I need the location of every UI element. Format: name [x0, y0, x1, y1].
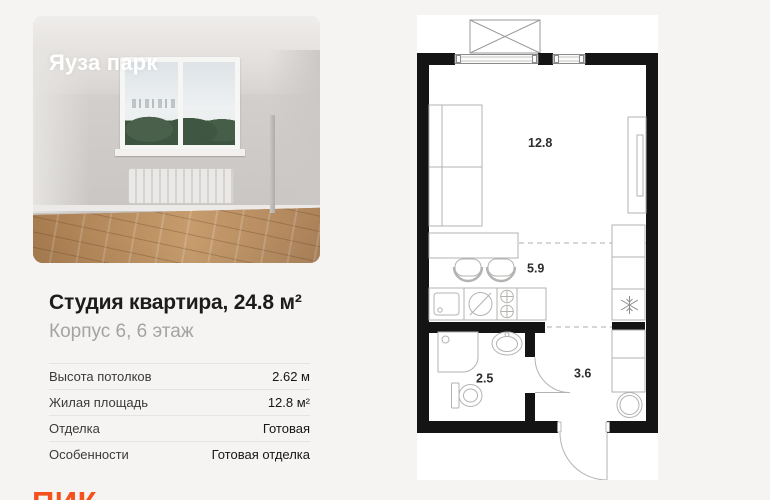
shower-icon: [438, 332, 478, 372]
room-area-kitchen: 5.9: [527, 262, 544, 276]
bed-icon: [429, 105, 482, 226]
detail-label: Особенности: [49, 447, 129, 462]
dining-counter-icon: [429, 233, 518, 258]
toilet-icon: [452, 383, 483, 408]
floorplan: 12.8 5.9 2.5 3.6: [417, 15, 658, 480]
detail-label: Жилая площадь: [49, 395, 148, 410]
apartment-photo: Яуза парк: [33, 16, 320, 263]
entry-door-arc: [560, 433, 607, 480]
detail-label: Высота потолков: [49, 369, 152, 384]
wardrobe-icon: [628, 117, 646, 213]
detail-value: 12.8 м²: [268, 395, 310, 410]
bathroom-sink-icon: [492, 332, 522, 355]
window-icon: [455, 55, 585, 64]
room-area-bathroom: 2.5: [476, 372, 493, 386]
kitchen-sink-icon: [429, 288, 464, 320]
room-area-living: 12.8: [528, 136, 552, 150]
detail-label: Отделка: [49, 421, 100, 436]
stove-icon: [497, 288, 517, 320]
listing-title: Студия квартира, 24.8 м²: [49, 291, 302, 315]
hall-cabinets-icon: [612, 330, 645, 392]
room-area-hallway: 3.6: [574, 367, 591, 381]
details-table: Высота потолков 2.62 м Жилая площадь 12.…: [49, 363, 310, 467]
kitchen-counter-icon: [517, 288, 546, 320]
detail-value: Готовая отделка: [212, 447, 310, 462]
pik-logo[interactable]: ПИК: [32, 485, 97, 500]
detail-row-features: Особенности Готовая отделка: [49, 441, 310, 467]
bathroom-door-arc: [535, 358, 570, 393]
water-heater-icon: [617, 393, 642, 418]
door-jamb-notches: [558, 422, 610, 432]
chair-icon: [454, 259, 482, 281]
detail-value: 2.62 м: [272, 369, 310, 384]
listing-card: Яуза парк Студия квартира, 24.8 м² Корпу…: [0, 0, 770, 500]
detail-row-living-area: Жилая площадь 12.8 м²: [49, 389, 310, 415]
project-title: Яуза парк: [49, 50, 158, 76]
detail-row-finish: Отделка Готовая: [49, 415, 310, 441]
balcony-box-icon: [470, 20, 540, 53]
listing-subtitle: Корпус 6, 6 этаж: [49, 321, 194, 343]
chair-icon: [487, 259, 515, 281]
washing-machine-icon: [464, 288, 497, 320]
detail-row-ceiling-height: Высота потолков 2.62 м: [49, 363, 310, 389]
detail-value: Готовая: [263, 421, 310, 436]
